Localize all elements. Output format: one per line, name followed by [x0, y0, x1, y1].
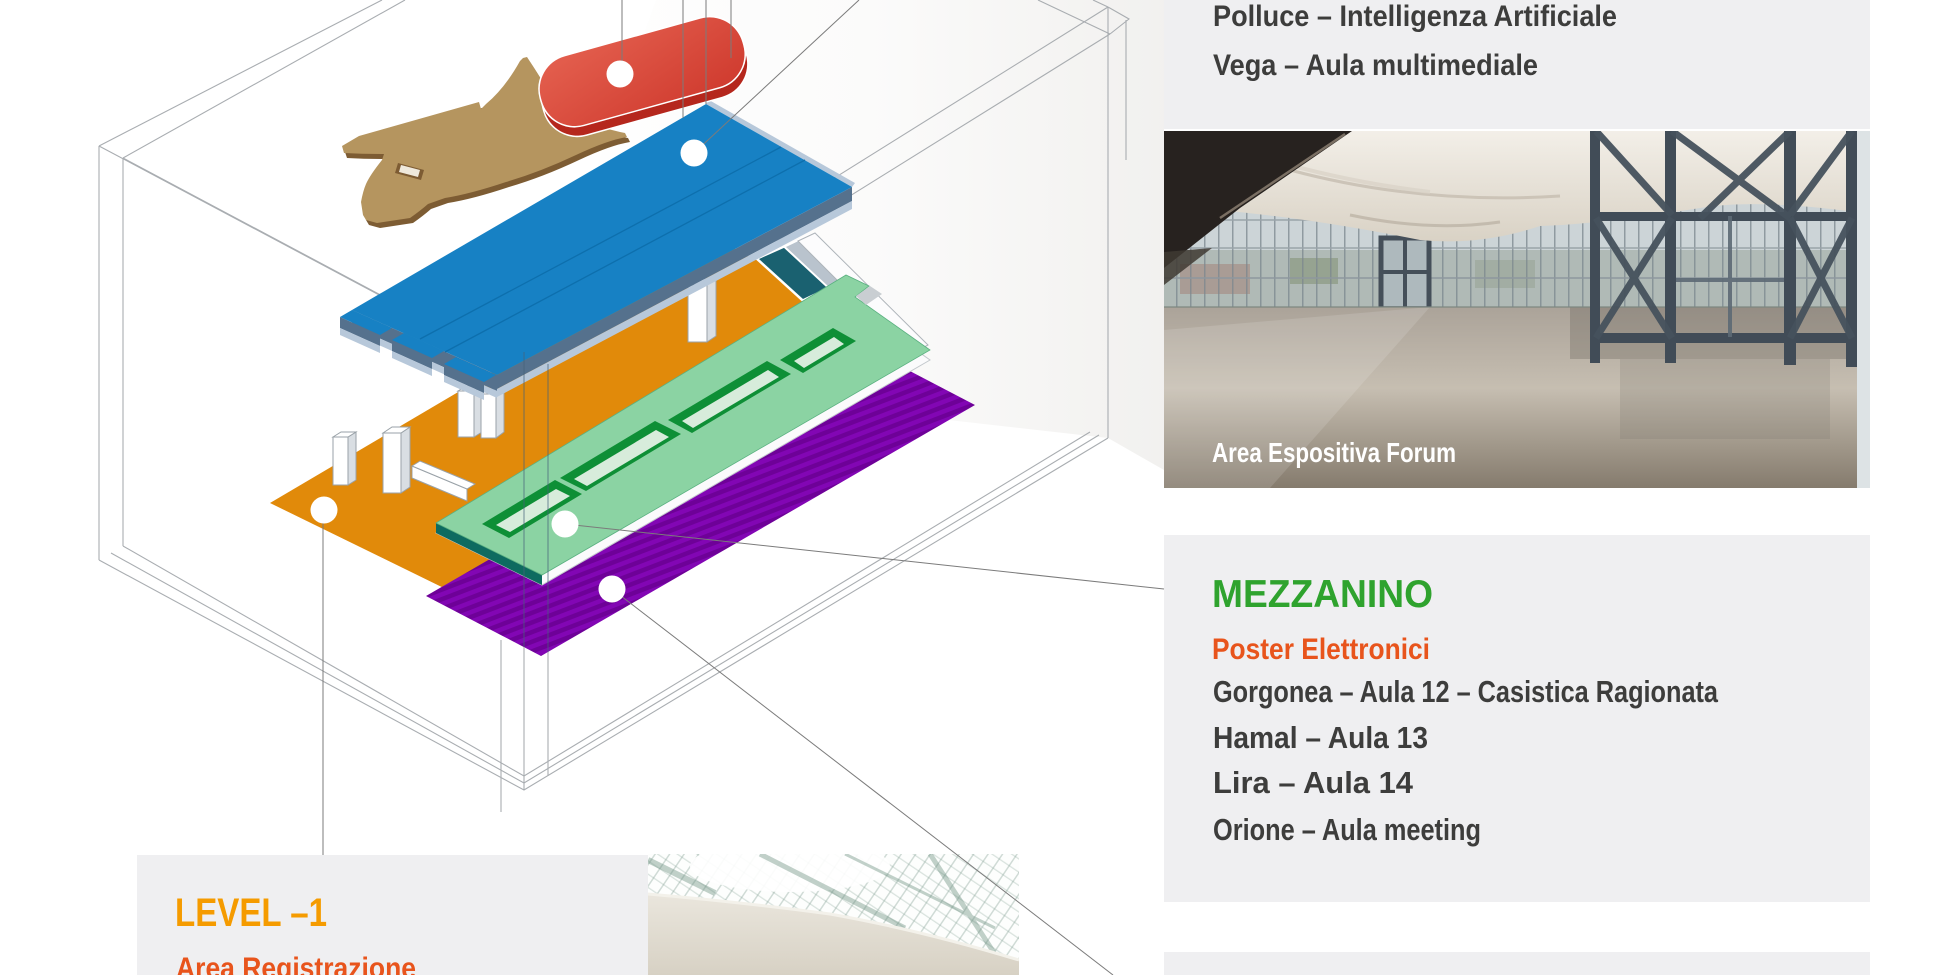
svg-text:Area Espositiva Forum: Area Espositiva Forum — [1212, 437, 1456, 468]
svg-text:MEZZANINO: MEZZANINO — [1212, 573, 1433, 616]
svg-text:Gorgonea – Aula 12 – Casistica: Gorgonea – Aula 12 – Casistica Ragionata — [1213, 674, 1719, 709]
svg-text:LEVEL –1: LEVEL –1 — [175, 891, 327, 935]
svg-text:Lira – Aula 14: Lira – Aula 14 — [1213, 765, 1414, 800]
svg-text:Hamal – Aula 13: Hamal – Aula 13 — [1213, 720, 1428, 755]
svg-text:Poster Elettronici: Poster Elettronici — [1212, 633, 1430, 666]
svg-text:Vega – Aula multimediale: Vega – Aula multimediale — [1213, 49, 1538, 82]
svg-text:Orione – Aula meeting: Orione – Aula meeting — [1213, 812, 1481, 847]
svg-text:Polluce – Intelligenza Artific: Polluce – Intelligenza Artificiale — [1213, 0, 1617, 33]
svg-text:Area Registrazione: Area Registrazione — [176, 952, 416, 975]
